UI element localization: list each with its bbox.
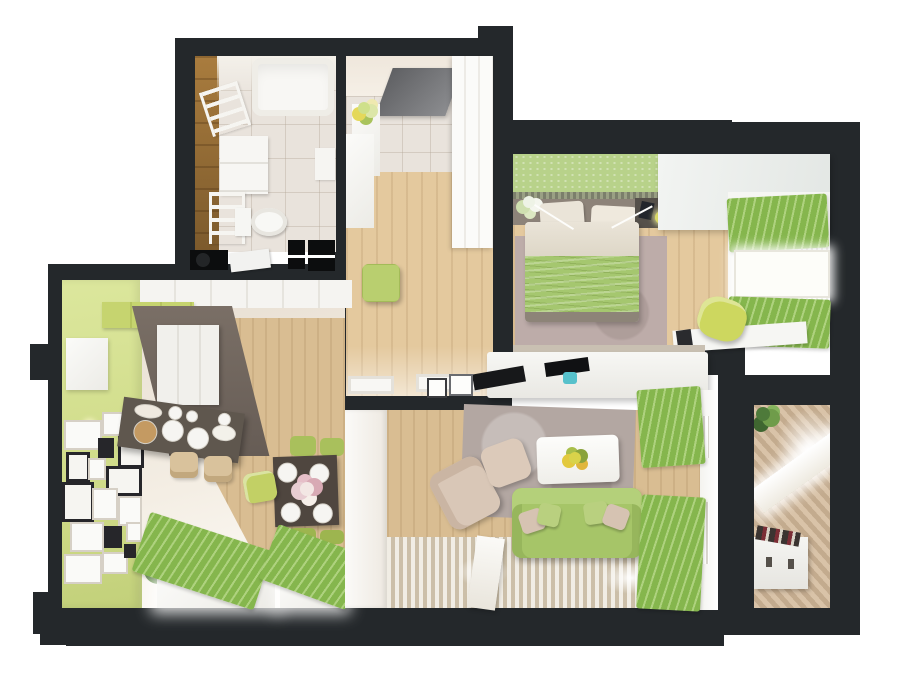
table-flowers-icon — [569, 452, 581, 464]
bench-handle-icon — [766, 557, 772, 567]
bed-footboard — [525, 312, 639, 322]
teal-glass-decor — [563, 372, 577, 384]
frame — [70, 522, 104, 552]
cooktop-burner — [308, 258, 335, 271]
vanity-cabinet — [220, 136, 268, 194]
wall-bedroom-top — [495, 120, 732, 154]
wall-cabinet — [315, 148, 335, 180]
dining-bouquet-icon — [300, 482, 314, 496]
hall-console — [346, 134, 374, 228]
plate — [186, 426, 211, 451]
plate — [312, 503, 333, 524]
living-kitchen — [62, 280, 345, 608]
pillow — [536, 502, 562, 528]
green-pouf — [362, 264, 400, 302]
plate — [309, 463, 330, 484]
living-curtain-top — [636, 386, 705, 468]
hall-wardrobe — [452, 56, 493, 248]
dining-chair — [290, 436, 316, 456]
sink-icon — [196, 253, 210, 267]
plate — [160, 418, 185, 443]
frame — [88, 458, 106, 480]
bar-stool — [204, 456, 232, 482]
kitchen-appliance-row — [188, 238, 338, 270]
bedroom-window-glass — [734, 250, 830, 298]
plate — [280, 502, 301, 523]
wall-left-protrusion — [30, 344, 58, 380]
console-photo-frame — [427, 378, 447, 398]
cooktop-burner — [288, 258, 305, 269]
wall-bathroom-left — [175, 38, 195, 264]
living-curtain-bottom — [636, 494, 706, 611]
bowl — [185, 410, 199, 424]
frame — [62, 482, 94, 522]
sofa — [512, 488, 642, 558]
bedroom-flowers-icon — [523, 196, 535, 208]
tray — [211, 423, 237, 442]
bathtub — [252, 58, 334, 116]
tray — [133, 402, 163, 420]
balcony — [754, 405, 830, 608]
washing-machine — [229, 249, 271, 273]
console-photo-frame — [449, 374, 473, 396]
bedroom-floor-edge-shadow — [513, 345, 705, 352]
bedroom-curtain-top — [727, 193, 830, 252]
wall-balcony-left — [718, 375, 754, 635]
frame — [64, 554, 102, 584]
wall-balcony-bottom — [718, 608, 860, 635]
frame — [124, 544, 136, 558]
storage-bench — [754, 537, 808, 589]
balcony-plant-icon — [756, 407, 770, 421]
dining-chair — [320, 438, 344, 456]
bathroom — [195, 56, 336, 252]
bench-handle-icon — [788, 559, 794, 569]
frame — [126, 522, 142, 542]
cooktop-burner — [308, 240, 335, 255]
floor-plan-canvas — [0, 0, 900, 675]
bar-stool — [170, 452, 198, 478]
entry-hall — [346, 56, 493, 396]
bedroom — [513, 154, 830, 345]
frame — [92, 488, 118, 520]
tall-cabinet-fridge — [157, 325, 219, 405]
bed-duvet — [525, 222, 639, 258]
dining-chair-left — [242, 469, 279, 504]
toilet-bowl — [251, 208, 287, 236]
cooktop-burner — [288, 240, 305, 255]
bed-green-blanket — [525, 256, 639, 314]
frame — [64, 420, 102, 450]
living-room — [387, 352, 718, 608]
wall-left-outer — [48, 264, 62, 612]
cutting-board — [132, 419, 159, 446]
frame — [98, 438, 114, 458]
hall-flowers-icon — [358, 102, 370, 114]
partition-wall-white — [345, 410, 387, 608]
wall-bottom — [66, 608, 724, 646]
double-bed — [525, 222, 639, 322]
wall-hall-right — [493, 38, 513, 360]
frame — [66, 452, 90, 482]
bowl — [167, 405, 183, 421]
plate — [277, 462, 298, 483]
toilet-tank — [235, 208, 251, 236]
frame — [104, 526, 122, 548]
wall-bottom-left-foot2 — [40, 630, 71, 645]
